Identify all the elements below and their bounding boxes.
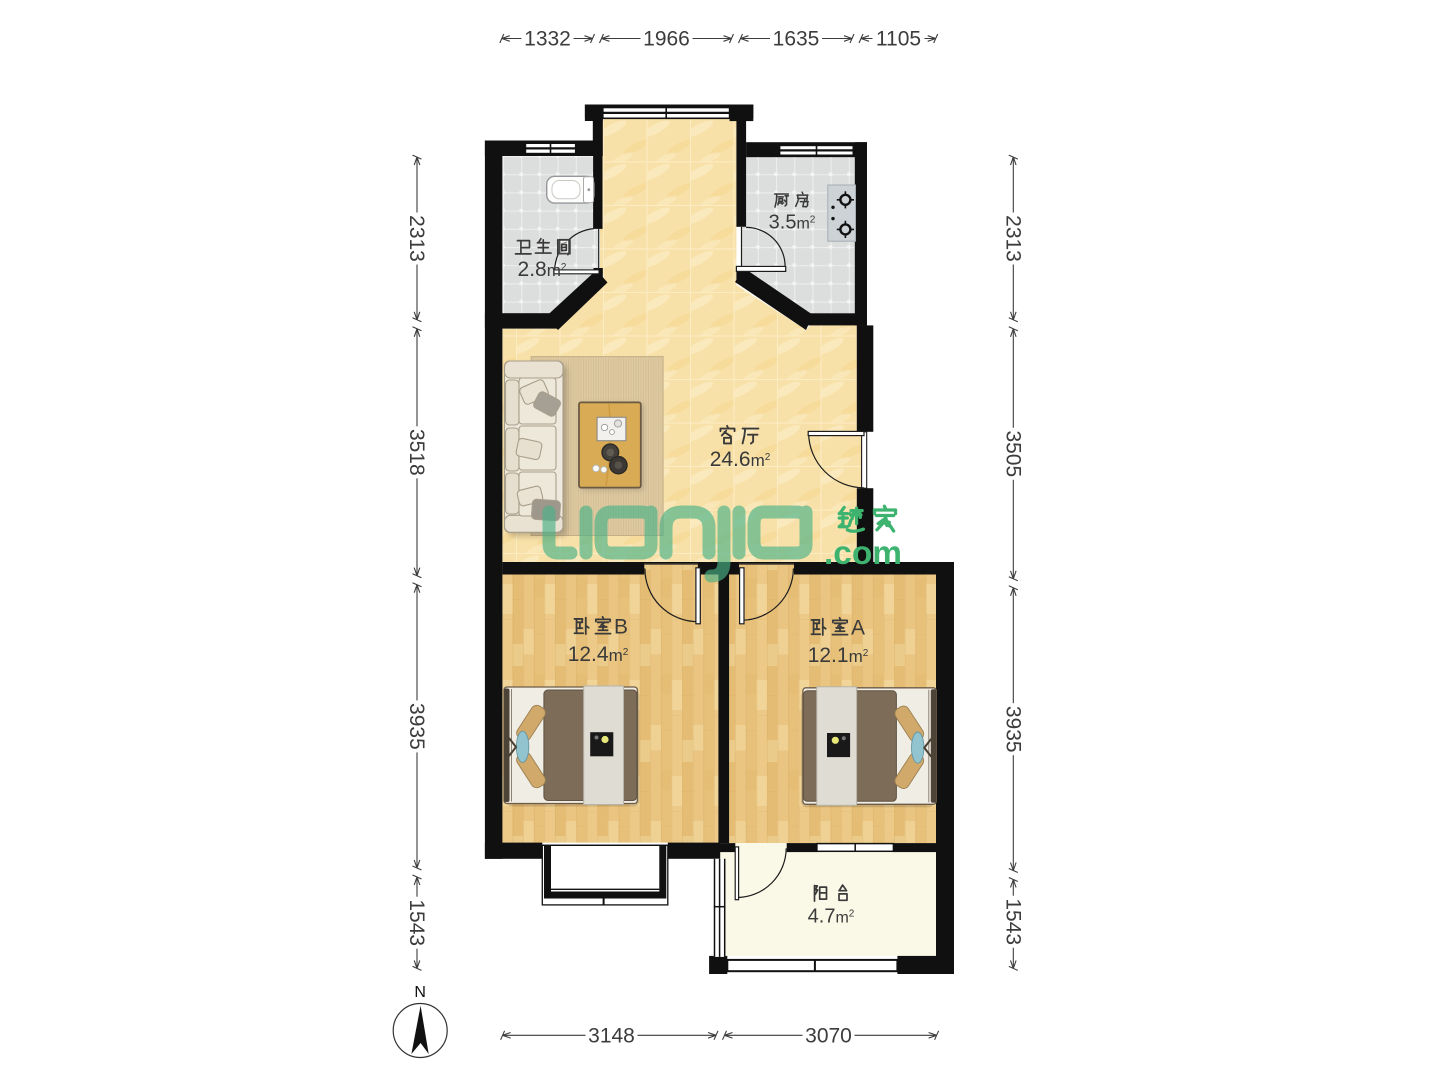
svg-text:2.8m2: 2.8m2 xyxy=(518,258,567,281)
svg-text:1105: 1105 xyxy=(876,28,921,51)
svg-text:A: A xyxy=(851,617,865,640)
svg-text:1635: 1635 xyxy=(773,28,820,51)
svg-text:4.7m2: 4.7m2 xyxy=(808,906,855,928)
svg-text:3.5m2: 3.5m2 xyxy=(769,212,816,234)
svg-text:3518: 3518 xyxy=(405,429,428,476)
svg-text:.com: .com xyxy=(824,534,902,571)
svg-text:B: B xyxy=(614,616,628,639)
svg-text:2313: 2313 xyxy=(1001,215,1024,262)
svg-text:12.4m2: 12.4m2 xyxy=(568,643,629,666)
svg-text:2313: 2313 xyxy=(405,215,428,262)
svg-text:3148: 3148 xyxy=(588,1024,635,1047)
svg-text:N: N xyxy=(414,984,426,1001)
svg-text:3935: 3935 xyxy=(1001,706,1024,753)
svg-text:24.6m2: 24.6m2 xyxy=(710,448,771,471)
svg-text:1966: 1966 xyxy=(643,28,690,51)
svg-text:1543: 1543 xyxy=(405,899,428,946)
svg-text:3070: 3070 xyxy=(805,1024,852,1047)
svg-text:3505: 3505 xyxy=(1001,430,1024,477)
svg-text:1332: 1332 xyxy=(524,28,571,51)
svg-text:1543: 1543 xyxy=(1001,898,1024,945)
svg-text:3935: 3935 xyxy=(405,703,428,750)
svg-text:12.1m2: 12.1m2 xyxy=(808,644,869,667)
